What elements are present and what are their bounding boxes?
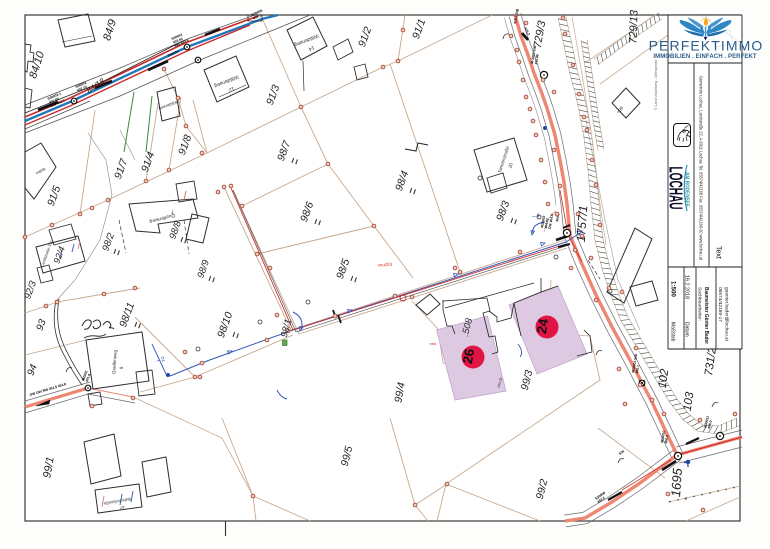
svg-text:24: 24 — [534, 317, 551, 335]
svg-text:Text: Text — [715, 246, 722, 259]
svg-text:guenter.bader@lochau.at: guenter.bader@lochau.at — [724, 287, 730, 342]
svg-text:neu: neu — [429, 341, 436, 347]
svg-text:Gemeinde Lochau, Landstraße 22: Gemeinde Lochau, Landstraße 22, A-6911 L… — [699, 76, 704, 261]
svg-text:16.2.2018: 16.2.2018 — [684, 275, 690, 299]
svg-text:1:500: 1:500 — [670, 281, 677, 297]
svg-text:IMMOBILIEN . EINFACH . PERFEKT: IMMOBILIEN . EINFACH . PERFEKT — [653, 54, 757, 60]
svg-text:LOCHAU: LOCHAU — [666, 167, 686, 210]
svg-text:© Land Vorarlberg - Orthophoto: © Land Vorarlberg - Orthophoto — [654, 60, 658, 110]
svg-text:Baumeister Günter Bader: Baumeister Günter Bader — [703, 287, 709, 344]
svg-text:AM BODENSEE: AM BODENSEE — [684, 172, 690, 207]
svg-text:1757/1: 1757/1 — [574, 205, 591, 243]
svg-text:Datum: Datum — [684, 322, 690, 337]
svg-text:Sachbearbeiter:: Sachbearbeiter: — [697, 287, 703, 321]
svg-text:Maßstab: Maßstab — [670, 322, 676, 342]
svg-text:729/13: 729/13 — [627, 9, 640, 44]
svg-text:1695: 1695 — [668, 467, 685, 498]
svg-text:26: 26 — [460, 347, 477, 365]
svg-text:05574/42168-17: 05574/42168-17 — [717, 287, 723, 322]
svg-text:PERFEKTIMMO: PERFEKTIMMO — [649, 38, 764, 54]
